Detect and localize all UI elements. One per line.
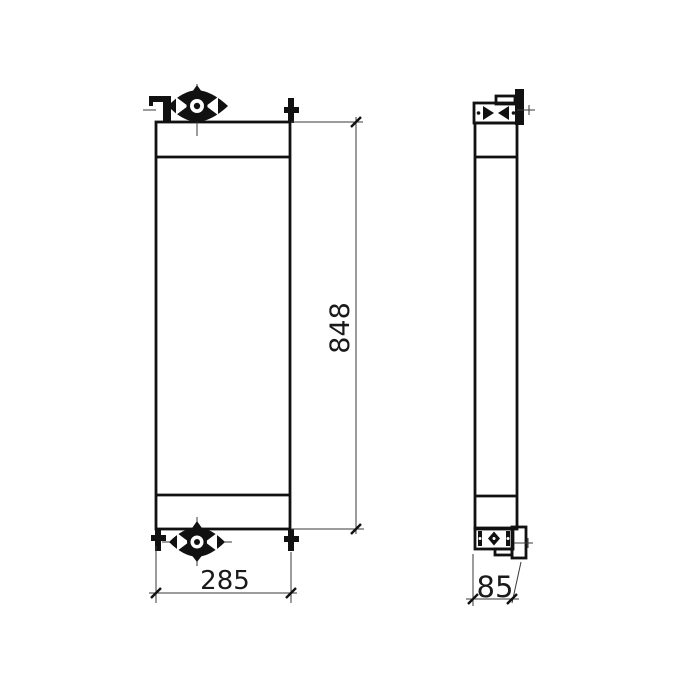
dim-848-label: 848 [325,302,356,354]
side-view [474,89,535,558]
front-filler-cap [168,84,228,136]
dimension-285: 285 [149,546,297,603]
front-bottom-right-stub [284,529,299,551]
side-top-bracket-plate [515,89,524,125]
front-top-left-fitting [143,96,171,123]
dim-285-label: 285 [200,566,250,596]
technical-drawing-canvas: 848 285 85 [0,0,700,700]
side-bottom-cap-block [475,527,533,558]
front-top-right-stub [284,98,299,123]
drawing-svg: 848 285 85 [0,0,700,700]
side-top-cap-block [474,89,535,125]
dim-85-label: 85 [477,570,514,604]
dimension-85: 85 [466,554,521,606]
front-body-outline [156,122,290,529]
side-body-outline [475,123,517,529]
side-bottom-tab [495,549,512,555]
dimension-848: 848 [291,117,364,534]
front-view [143,84,299,566]
front-drain-cap [162,517,232,566]
front-bottom-left-stub [151,529,166,551]
